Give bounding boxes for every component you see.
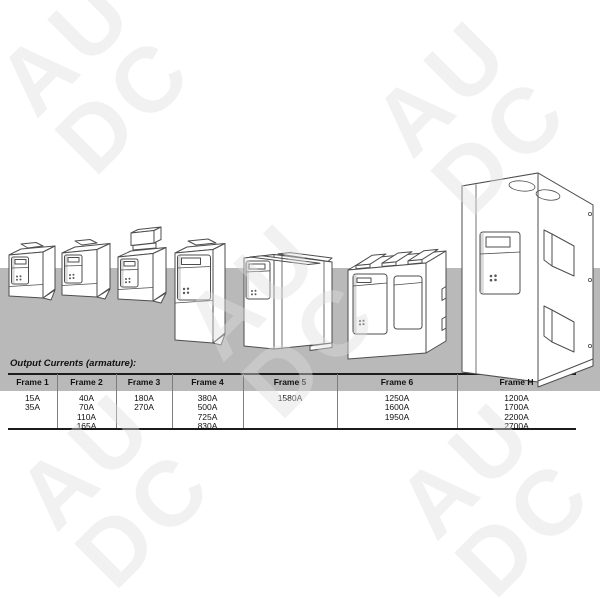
section-label: Output Currents (armature): <box>10 358 136 369</box>
frame-h-control-panel <box>480 232 520 294</box>
frame-3-drive-illustration <box>114 224 174 308</box>
frame-6-control-panel <box>353 274 387 334</box>
frame-6-drive-illustration <box>346 237 450 363</box>
column-header: Frame 2 <box>57 374 116 391</box>
column-header: Frame H <box>457 374 576 391</box>
frame-4-control-panel <box>178 255 211 300</box>
column-header: Frame 3 <box>116 374 172 391</box>
frame-2-drive-illustration <box>59 237 113 304</box>
frame-3-control-panel <box>121 259 139 287</box>
column-header: Frame 4 <box>172 374 243 391</box>
table-column-frame-h: Frame H 1200A 1700A 2200A 2700A <box>457 374 576 428</box>
table-column-frame-5: Frame 5 1580A <box>243 374 337 428</box>
frame-5-drive-illustration <box>242 236 336 357</box>
table-column-frame-4: Frame 4 380A 500A 725A 830A <box>172 374 243 428</box>
table-column-frame-1: Frame 1 15A 35A <box>8 374 57 428</box>
current-value: 35A <box>8 403 57 412</box>
watermark-line: AU <box>0 0 209 189</box>
current-value: 165A <box>57 422 116 431</box>
frame-1-control-panel <box>12 257 29 284</box>
frame-5-control-panel <box>246 261 270 299</box>
table-column-frame-2: Frame 2 40A 70A 110A 165A <box>57 374 116 428</box>
frame-4-drive-illustration <box>172 236 234 349</box>
current-value: 1580A <box>243 394 337 403</box>
current-value: 830A <box>172 422 243 431</box>
current-value: 2700A <box>457 422 576 431</box>
column-header: Frame 6 <box>337 374 457 391</box>
frame-2-control-panel <box>65 255 83 283</box>
frame-1-drive-illustration <box>6 240 58 304</box>
column-header: Frame 1 <box>8 374 57 391</box>
table-column-frame-6: Frame 6 1250A 1600A 1950A <box>337 374 457 428</box>
drive-frame-size-diagram: Output Currents (armature): Frame 1 15A … <box>0 0 600 600</box>
frame-h-drive-illustration <box>456 170 596 388</box>
frame-6-door-panel <box>394 276 422 329</box>
table-column-frame-3: Frame 3 180A 270A <box>116 374 172 428</box>
watermark-line: DC <box>0 0 267 247</box>
current-value: 1950A <box>337 413 457 422</box>
column-header: Frame 5 <box>243 374 337 391</box>
current-value: 270A <box>116 403 172 412</box>
